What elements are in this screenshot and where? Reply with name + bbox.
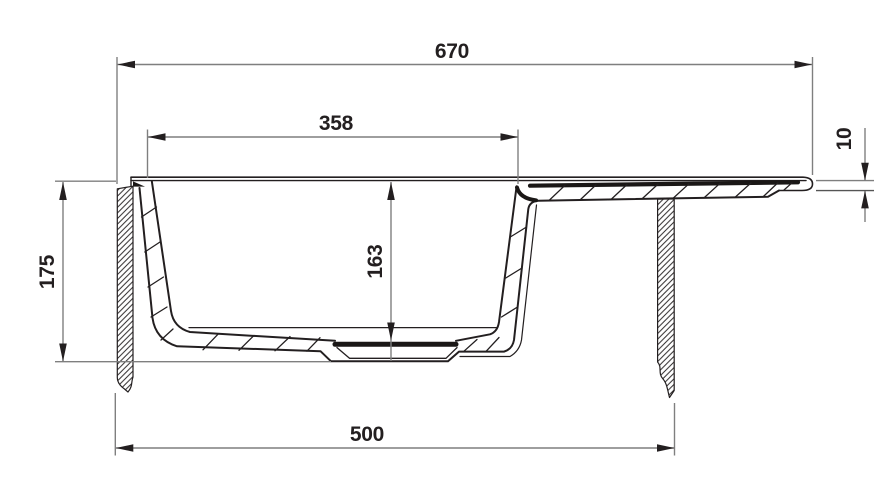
sink-cross-section-drawing: 670 358 10 175 [0,0,889,495]
dimension-overall-width: 670 [117,40,813,184]
arrowhead-left [148,133,166,141]
dimension-base-width-label: 500 [350,423,384,446]
dimension-base-width: 500 [115,393,674,456]
dimension-rim-edge-thickness: 10 [816,128,874,222]
dimension-bowl-top-width-label: 358 [319,112,354,135]
drainboard-top-heavy-line [530,182,798,185]
arrowhead-left [116,444,134,452]
dimension-bowl-depth-label: 163 [364,244,387,278]
drain-recess-inner-outline [337,348,457,359]
left-wall-hatch-rungs [142,207,174,340]
arrowhead-down [387,323,395,341]
rim-left-seal-wedge [133,181,145,186]
sink-profile [117,177,812,397]
right-support-hatch [658,199,675,398]
arrowhead-right [795,61,813,69]
arrowhead-right [501,133,519,141]
dimension-overall-width-label: 670 [435,40,469,63]
bowl-top-right-heavy-corner [517,188,536,201]
arrowhead-right [657,444,675,452]
arrowhead-down [861,163,869,181]
dimension-bowl-top-width: 358 [148,112,519,184]
arrowhead-up [861,191,869,209]
bowl-inner-right [456,186,517,340]
arrowhead-left [118,61,136,69]
arrowhead-up [387,182,395,200]
dimension-overall-depth-label: 175 [36,254,59,289]
dimension-overall-depth: 175 [36,181,331,362]
dimension-rim-edge-thickness-label: 10 [833,128,856,151]
arrowhead-up [59,182,67,200]
technical-drawing-page: 670 358 10 175 [0,0,889,495]
dimension-bowl-depth: 163 [364,182,395,361]
arrowhead-down [59,344,67,362]
bowl-inner-left [152,181,335,341]
